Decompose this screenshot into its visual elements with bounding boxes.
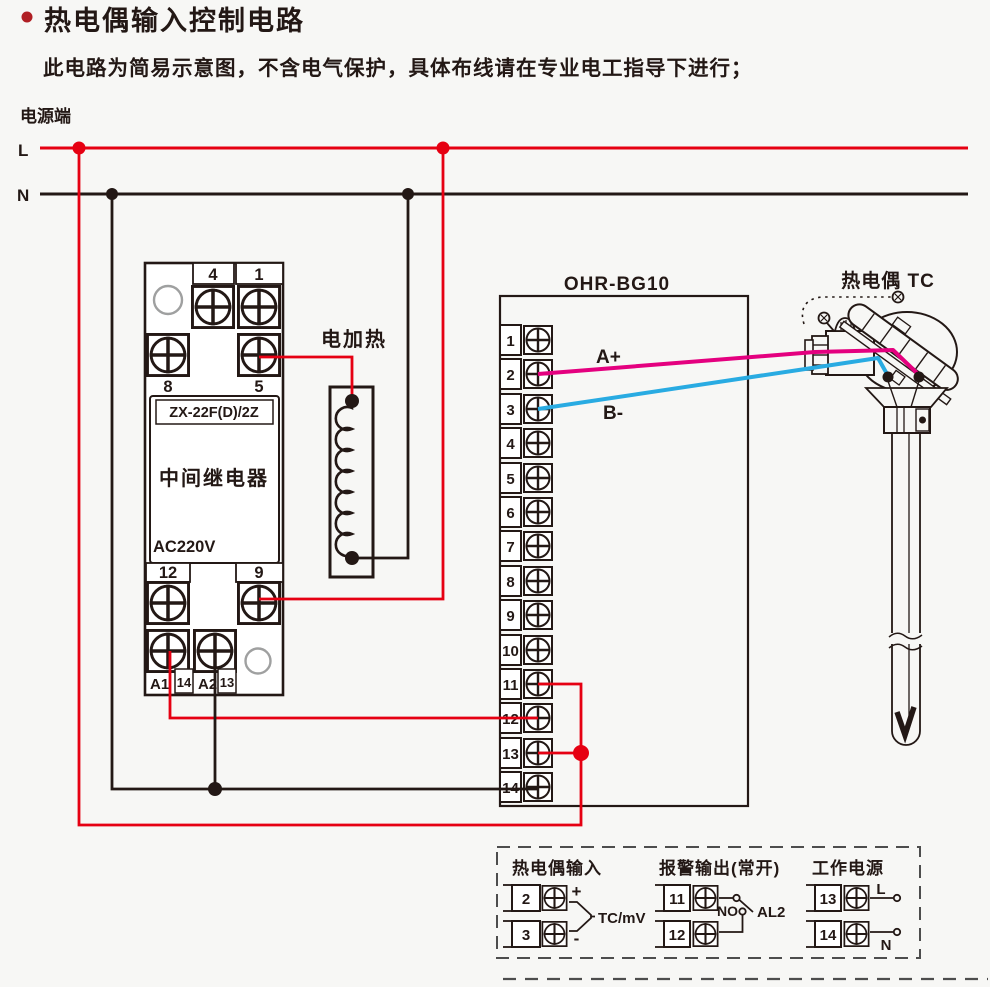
junction-dot — [437, 142, 450, 155]
probe-tip-arrow-icon — [897, 707, 914, 735]
relay-screw-8 — [147, 334, 188, 375]
terminal-row: 6 — [500, 497, 552, 527]
screw-icon — [524, 498, 552, 526]
screw-icon — [844, 922, 868, 946]
contact-icon — [894, 929, 900, 935]
junction-dot — [402, 188, 414, 200]
svg-text:10: 10 — [502, 643, 519, 660]
probe-sheath — [892, 433, 920, 745]
svg-text:12: 12 — [502, 711, 519, 728]
legend-al2-label: AL2 — [757, 904, 785, 921]
wire-b-minus — [538, 358, 887, 409]
svg-text:13: 13 — [502, 746, 519, 763]
screw-icon — [542, 922, 566, 946]
heater-label: 电加热 — [321, 328, 387, 351]
relay-t4-label: 4 — [208, 266, 218, 284]
contact-icon — [894, 895, 900, 901]
legend-t14: 14 — [820, 927, 837, 944]
bullet-icon — [22, 12, 33, 23]
legend-tc-input: 热电偶输入 2 3 + - TC/mV — [503, 858, 646, 948]
relay-screw-a1 — [147, 630, 188, 671]
wire-a-plus-label: A+ — [596, 347, 621, 368]
contact-icon — [733, 895, 739, 901]
screw-icon — [524, 429, 552, 457]
screw-icon — [844, 886, 868, 910]
contact-icon — [739, 908, 745, 914]
line-n-label: N — [17, 186, 29, 205]
relay-screw-4 — [192, 286, 233, 327]
legend-no-label: NO — [717, 903, 738, 919]
legend-alarm: 报警输出(常开) 11 12 NO AL2 — [655, 858, 785, 947]
power-rails: 电源端 L N — [17, 106, 968, 205]
relay-screw-5 — [238, 334, 279, 375]
legend-l-label: L — [876, 881, 885, 898]
terminal-row: 1 — [500, 325, 552, 355]
terminal-row: 5 — [500, 463, 552, 493]
legend-supply-title: 工作电源 — [812, 858, 884, 878]
terminal-row: 7 — [500, 531, 552, 561]
relay-t8-label: 8 — [163, 378, 172, 396]
legend: 热电偶输入 2 3 + - TC/mV 报警输出(常开) 11 — [497, 847, 988, 979]
relay-t12-label: 12 — [159, 564, 177, 582]
terminal-strip: 1 2 3 4 5 6 7 8 9 10 11 12 13 14 — [500, 325, 552, 802]
relay-model: ZX-22F(D)/2Z — [169, 405, 259, 421]
legend-t13: 13 — [820, 891, 837, 908]
screw-icon — [524, 532, 552, 560]
junction-dot — [573, 745, 589, 761]
relay-t14-label: 14 — [177, 675, 192, 690]
controller: OHR-BG10 1 2 3 4 5 6 7 8 9 10 11 12 13 1… — [500, 274, 748, 806]
svg-text:9: 9 — [506, 608, 514, 625]
screw-icon — [524, 326, 552, 354]
svg-text:8: 8 — [506, 574, 514, 591]
legend-tc-title: 热电偶输入 — [512, 858, 602, 878]
junction-dot — [106, 188, 118, 200]
legend-n-label: N — [881, 937, 892, 954]
wiring-diagram-page: 热电偶输入控制电路 此电路为简易示意图，不含电气保护，具体布线请在专业电工指导下… — [0, 0, 990, 987]
screw-icon — [524, 601, 552, 629]
screw-icon — [524, 636, 552, 664]
relay-screw-12 — [147, 582, 188, 623]
legend-tc-signal: TC/mV — [598, 910, 646, 927]
diagram-canvas: 热电偶输入控制电路 此电路为简易示意图，不含电气保护，具体布线请在专业电工指导下… — [0, 0, 990, 987]
junction-dot — [208, 782, 222, 796]
legend-t11: 11 — [669, 891, 685, 908]
screw-icon — [542, 886, 566, 910]
svg-text:7: 7 — [506, 539, 514, 556]
relay-screw-9 — [238, 582, 279, 623]
controller-model: OHR-BG10 — [564, 274, 670, 295]
relay-voltage: AC220V — [153, 538, 215, 556]
terminal-row: 10 — [500, 635, 552, 665]
relay-name: 中间继电器 — [159, 466, 269, 490]
svg-text:6: 6 — [506, 505, 514, 522]
svg-text:2: 2 — [506, 367, 514, 384]
header: 热电偶输入控制电路 此电路为简易示意图，不含电气保护，具体布线请在专业电工指导下… — [22, 5, 753, 80]
svg-text:11: 11 — [503, 677, 519, 694]
thermocouple-label: 热电偶 TC — [841, 269, 935, 292]
tc-terminal-dot — [914, 372, 925, 383]
tc-terminal-dot — [883, 372, 894, 383]
power-label: 电源端 — [20, 106, 71, 126]
relay-t1-label: 1 — [254, 266, 263, 284]
terminal-row: 8 — [500, 566, 552, 596]
terminal-row: 4 — [500, 428, 552, 458]
svg-text:4: 4 — [506, 436, 515, 453]
legend-t12: 12 — [669, 927, 686, 944]
page-subtitle: 此电路为简易示意图，不含电气保护，具体布线请在专业电工指导下进行； — [43, 56, 753, 80]
screw-icon — [524, 773, 552, 801]
relay: 4 1 8 5 ZX-22F(D)/2Z 中间继电器 AC220V 12 9 A… — [145, 263, 283, 695]
screw-icon — [524, 567, 552, 595]
relay-screw-1 — [238, 286, 279, 327]
relay-t9-label: 9 — [254, 564, 263, 582]
junction-dot — [73, 142, 86, 155]
screw-icon — [693, 922, 717, 946]
neck — [866, 388, 947, 407]
legend-alarm-title: 报警输出(常开) — [659, 858, 780, 878]
relay-a1-label: A1 — [150, 676, 169, 693]
line-l-label: L — [18, 141, 28, 160]
legend-t3: 3 — [522, 927, 530, 944]
plus-sign: + — [572, 882, 583, 901]
heater-coil-icon — [336, 401, 352, 558]
screw-icon — [524, 464, 552, 492]
relay-t13-label: 13 — [220, 675, 234, 690]
bracket — [569, 902, 591, 931]
terminal-row: 9 — [500, 600, 552, 630]
legend-t2: 2 — [522, 891, 530, 908]
svg-text:1: 1 — [506, 333, 514, 350]
terminal-row: 14 — [500, 772, 552, 802]
heater-terminal-dot — [345, 551, 359, 565]
heater: 电加热 — [321, 328, 387, 577]
legend-supply: 工作电源 13 14 L N — [806, 858, 900, 954]
relay-t5-label: 5 — [254, 378, 263, 396]
wire-b-minus-label: B- — [603, 403, 623, 424]
thermocouple: 热电偶 TC — [802, 269, 971, 745]
heater-terminal-dot — [345, 394, 359, 408]
svg-text:3: 3 — [506, 402, 514, 419]
page-title: 热电偶输入控制电路 — [44, 5, 305, 36]
svg-text:5: 5 — [506, 471, 514, 488]
screw-icon — [693, 886, 717, 910]
wire-n-to-heater — [352, 194, 408, 558]
